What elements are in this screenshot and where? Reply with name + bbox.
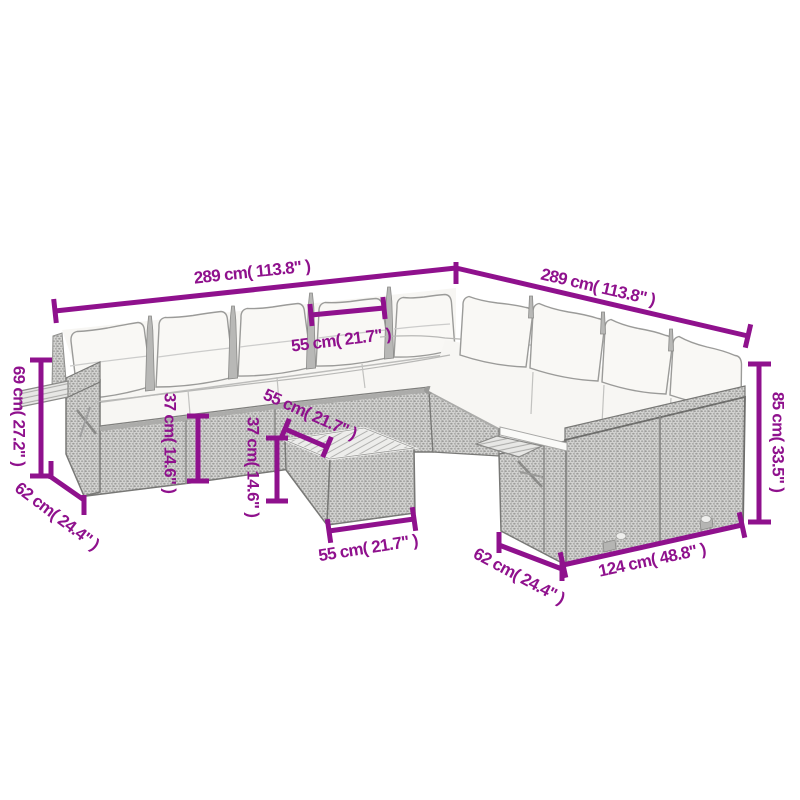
svg-text:55 cm( 21.7" ): 55 cm( 21.7" ) [317, 531, 419, 565]
svg-text:37 cm( 14.6" ): 37 cm( 14.6" ) [161, 393, 180, 493]
svg-text:289 cm( 113.8" ): 289 cm( 113.8" ) [193, 256, 311, 287]
svg-text:85 cm( 33.5" ): 85 cm( 33.5" ) [769, 392, 788, 492]
svg-text:69 cm( 27.2" ): 69 cm( 27.2" ) [10, 366, 29, 466]
svg-text:37 cm( 14.6" ): 37 cm( 14.6" ) [244, 417, 263, 517]
